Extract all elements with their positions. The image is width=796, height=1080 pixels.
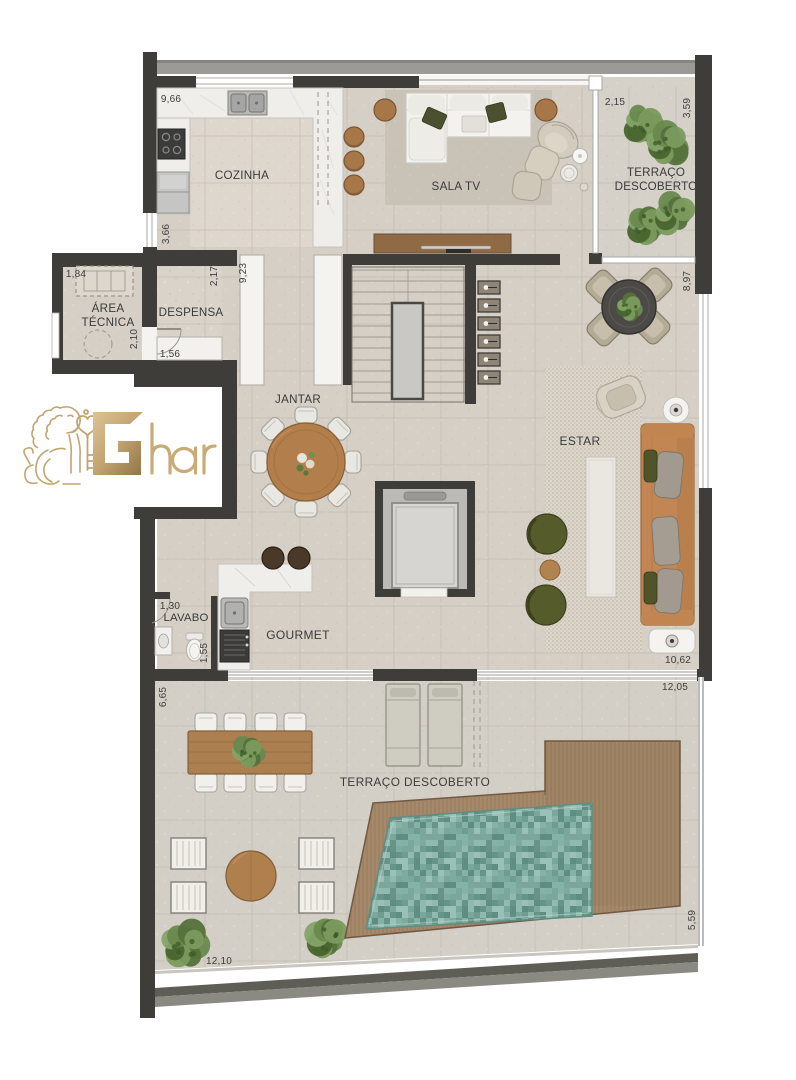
svg-text:9,66: 9,66 (161, 94, 182, 105)
svg-text:5,59: 5,59 (687, 910, 698, 931)
svg-text:1,55: 1,55 (199, 643, 210, 664)
svg-text:1,84: 1,84 (66, 269, 87, 280)
svg-text:JANTAR: JANTAR (275, 393, 321, 406)
svg-text:12,10: 12,10 (206, 956, 232, 967)
svg-text:3,66: 3,66 (161, 224, 172, 245)
svg-text:2,15: 2,15 (605, 97, 626, 108)
svg-text:8,97: 8,97 (682, 271, 693, 292)
svg-text:12,05: 12,05 (662, 682, 688, 693)
svg-text:TERRAÇO: TERRAÇO (627, 166, 685, 179)
svg-text:1,56: 1,56 (160, 349, 181, 360)
svg-text:SALA TV: SALA TV (432, 180, 481, 193)
svg-text:TERRAÇO DESCOBERTO: TERRAÇO DESCOBERTO (340, 775, 490, 789)
svg-text:1,30: 1,30 (160, 601, 181, 612)
svg-text:ESTAR: ESTAR (559, 434, 600, 448)
svg-text:TÉCNICA: TÉCNICA (82, 316, 135, 329)
svg-text:9,23: 9,23 (238, 263, 249, 284)
svg-text:6,65: 6,65 (158, 687, 169, 708)
svg-text:DESPENSA: DESPENSA (159, 306, 224, 319)
svg-text:LAVABO: LAVABO (163, 612, 208, 624)
svg-text:COZINHA: COZINHA (215, 169, 269, 182)
svg-text:DESCOBERTO: DESCOBERTO (615, 180, 698, 193)
svg-text:3,59: 3,59 (682, 98, 693, 119)
svg-text:GOURMET: GOURMET (266, 628, 330, 642)
svg-text:2,10: 2,10 (129, 329, 140, 350)
svg-text:10,62: 10,62 (665, 655, 691, 666)
svg-text:ÁREA: ÁREA (92, 302, 125, 315)
svg-text:2,17: 2,17 (209, 266, 220, 287)
